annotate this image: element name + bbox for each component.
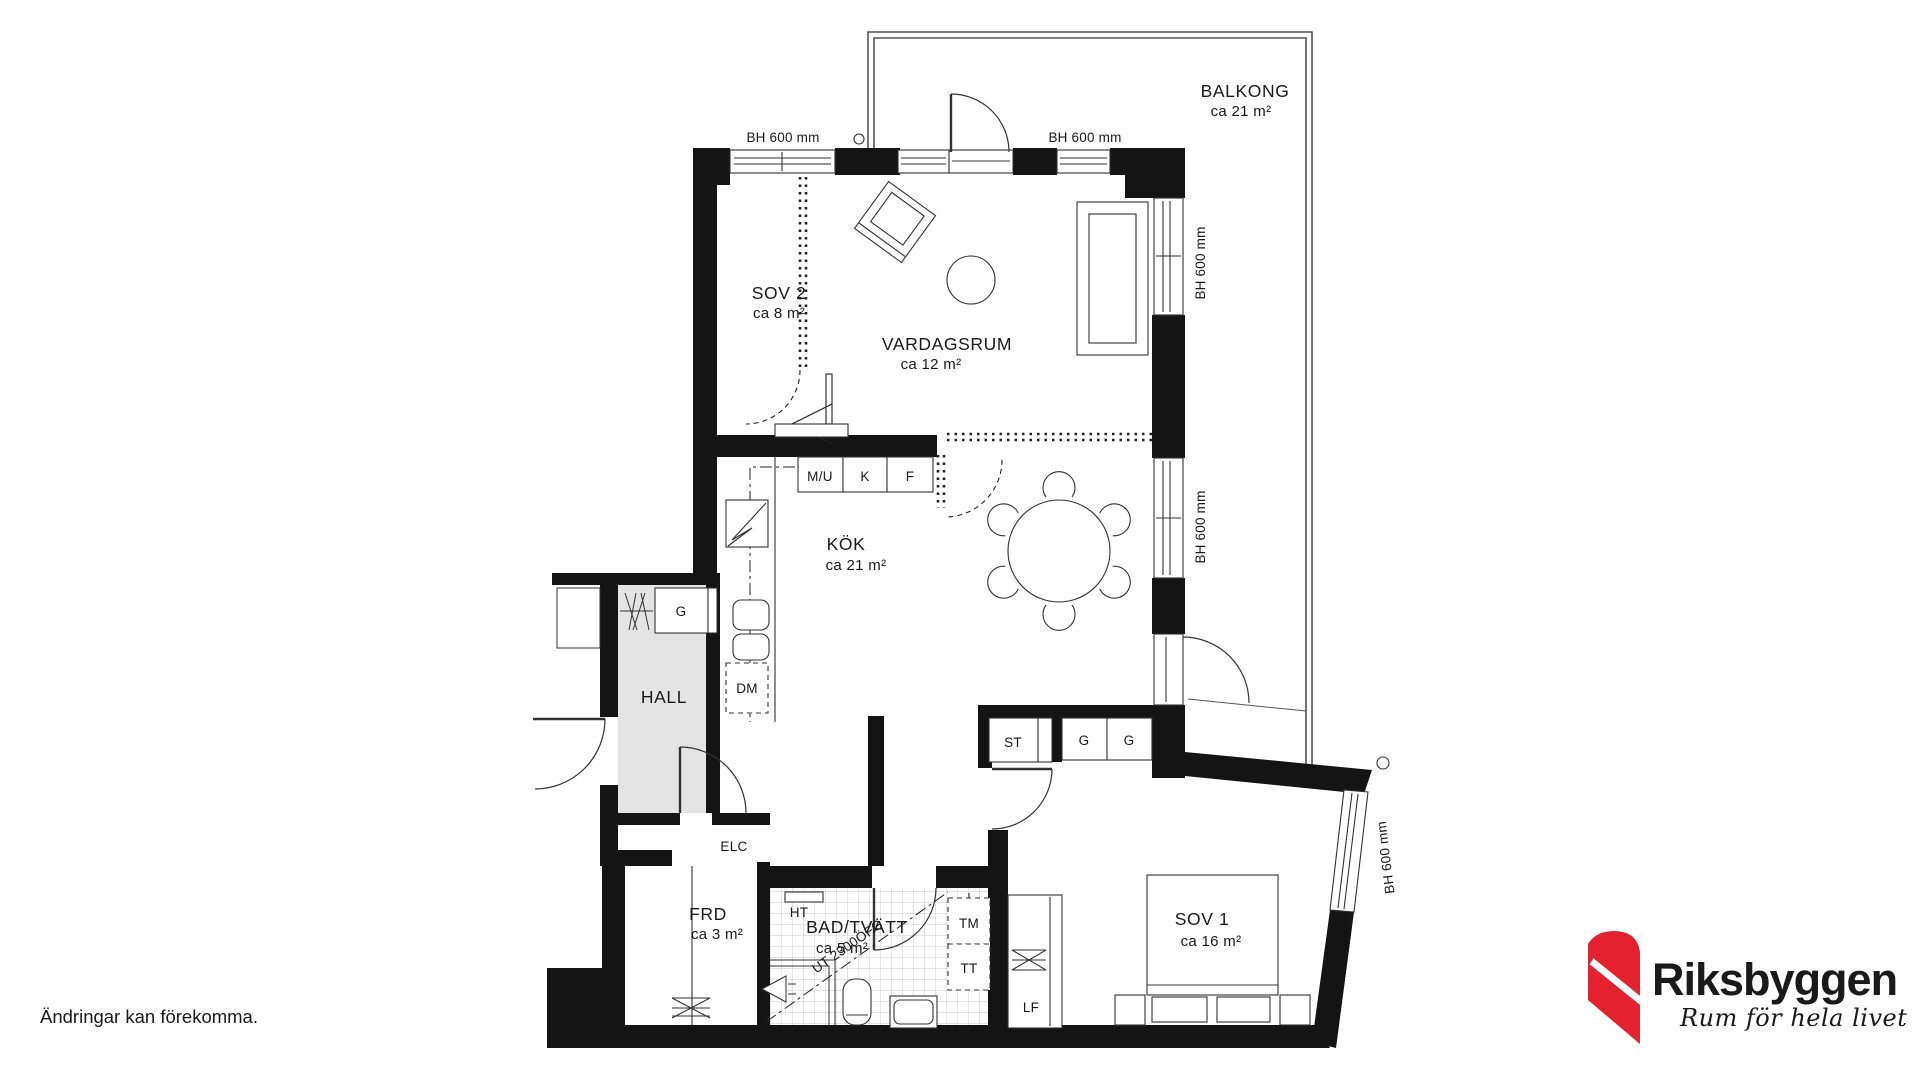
window-height-label: BH 600 mm (746, 130, 819, 145)
washbasin (890, 996, 937, 1028)
room-label-vardagsrum: VARDAGSRUM (882, 334, 1012, 354)
fixture-label-g2: G (1079, 733, 1090, 748)
fixture-label-elc: ELC (720, 839, 747, 854)
room-label-frd: FRD (689, 904, 727, 924)
window-height-label: BH 600 mm (1048, 130, 1121, 145)
tv-bench (775, 424, 848, 437)
entry-alcove (557, 588, 600, 648)
chair (1043, 472, 1075, 497)
chair (1043, 605, 1075, 630)
disclaimer-text: Ändringar kan förekomma. (40, 1006, 258, 1028)
sink (733, 600, 769, 660)
room-area-vardagsrum: ca 12 m² (901, 356, 962, 373)
facade-marker (854, 134, 864, 144)
room-label-sov2: SOV 2 (752, 283, 807, 303)
room-area-sov1: ca 16 m² (1181, 933, 1242, 950)
brand-name: Riksbyggen (1652, 954, 1897, 1005)
room-area-frd: ca 3 m² (691, 926, 743, 943)
facade-marker (1377, 757, 1389, 769)
floor-plan-drawing: BALKONG ca 21 m² SOV 2 ca 8 m² VARDAGSRU… (0, 0, 1920, 1080)
armchair (854, 181, 935, 262)
room-area-balkong: ca 21 m² (1211, 103, 1272, 120)
window-height-label: BH 600 mm (1374, 820, 1398, 894)
floor-plan-page: BALKONG ca 21 m² SOV 2 ca 8 m² VARDAGSRU… (0, 0, 1920, 1080)
sofa (1077, 202, 1148, 355)
fixture-label-g: G (676, 604, 687, 619)
stove (726, 500, 768, 547)
brand-tagline: Rum för hela livet (1679, 1004, 1907, 1032)
fixture-label-dm: DM (736, 681, 758, 696)
fixture-label-ht: HT (790, 905, 809, 920)
room-label-hall: HALL (641, 687, 687, 707)
fixture-label-f: F (906, 469, 915, 484)
room-label-sov1: SOV 1 (1175, 909, 1230, 929)
room-area-sov2: ca 8 m² (753, 305, 805, 322)
fixture-label-mu: M/U (807, 469, 833, 484)
fixture-label-k: K (860, 469, 869, 484)
room-label-kok: KÖK (827, 534, 866, 554)
fixture-label-g3: G (1124, 733, 1135, 748)
frd-interior (672, 866, 710, 1025)
toilet (843, 979, 871, 1025)
bed (1115, 875, 1310, 1025)
window-height-label: BH 600 mm (1193, 226, 1208, 299)
fixture-label-st: ST (1004, 735, 1022, 750)
dining-table (982, 472, 1136, 631)
window-height-label: BH 600 mm (1193, 490, 1208, 563)
side-table (947, 256, 995, 304)
riksbyggen-logo: Riksbyggen Rum för hela livet (1585, 931, 1907, 1044)
fixture-label-lf: LF (1023, 1000, 1039, 1015)
room-area-kok: ca 21 m² (826, 557, 887, 574)
riksbyggen-logo-mark (1585, 931, 1642, 1044)
towel-dryer (785, 892, 823, 902)
fixture-label-tt: TT (960, 961, 977, 976)
room-label-balkong: BALKONG (1201, 81, 1290, 101)
fixture-label-tm: TM (959, 916, 979, 931)
